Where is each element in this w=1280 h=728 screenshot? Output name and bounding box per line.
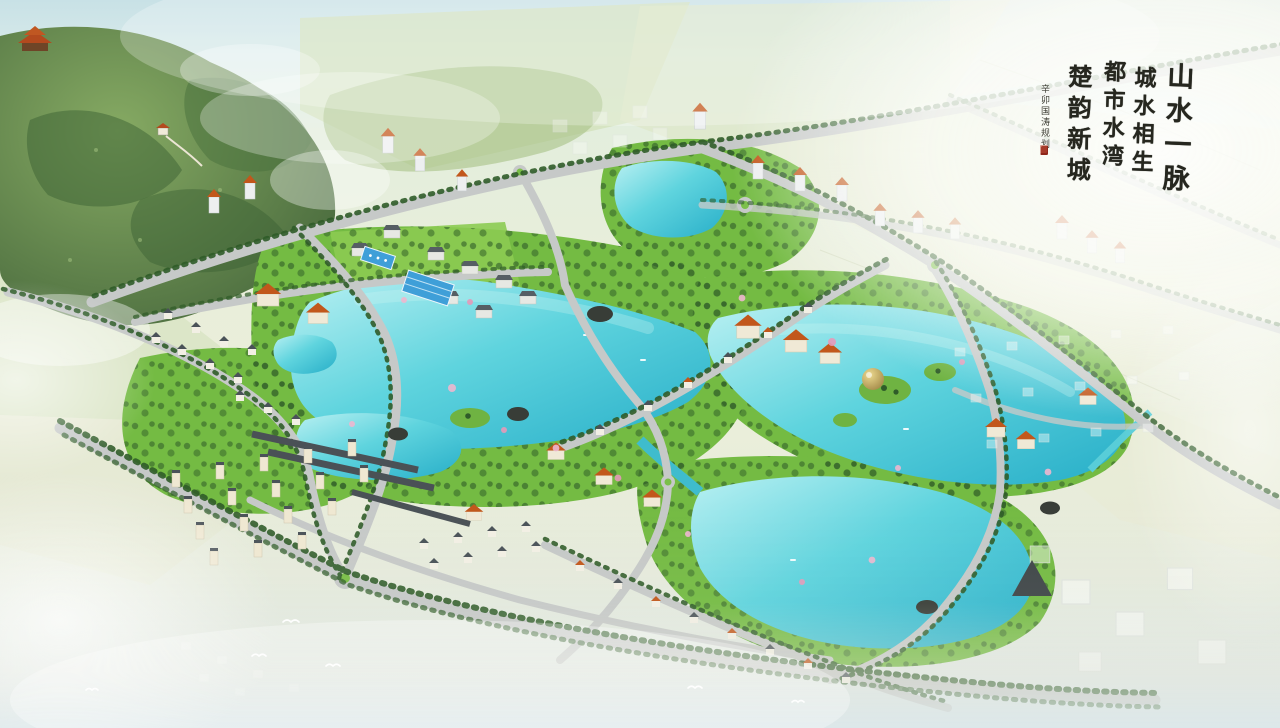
calligraphy-column-3: 都市水湾 [1095,60,1130,173]
lake-island [833,413,857,427]
seal-stamp [1040,145,1048,155]
golden-dome [862,368,884,390]
calligraphy-signature: 辛卯国涛规划 [1038,84,1051,150]
masterplan-rendering: 山水一脉 城水相生 都市水湾 楚韵新城 辛卯国涛规划 [0,0,1280,728]
courtyard-pond [274,335,337,374]
lake-island [450,408,490,428]
calligraphy-column-1: 山水一脉 [1153,61,1198,199]
calligraphy-column-2: 城水相生 [1124,65,1160,178]
calligraphy-column-4: 楚韵新城 [1059,64,1096,189]
